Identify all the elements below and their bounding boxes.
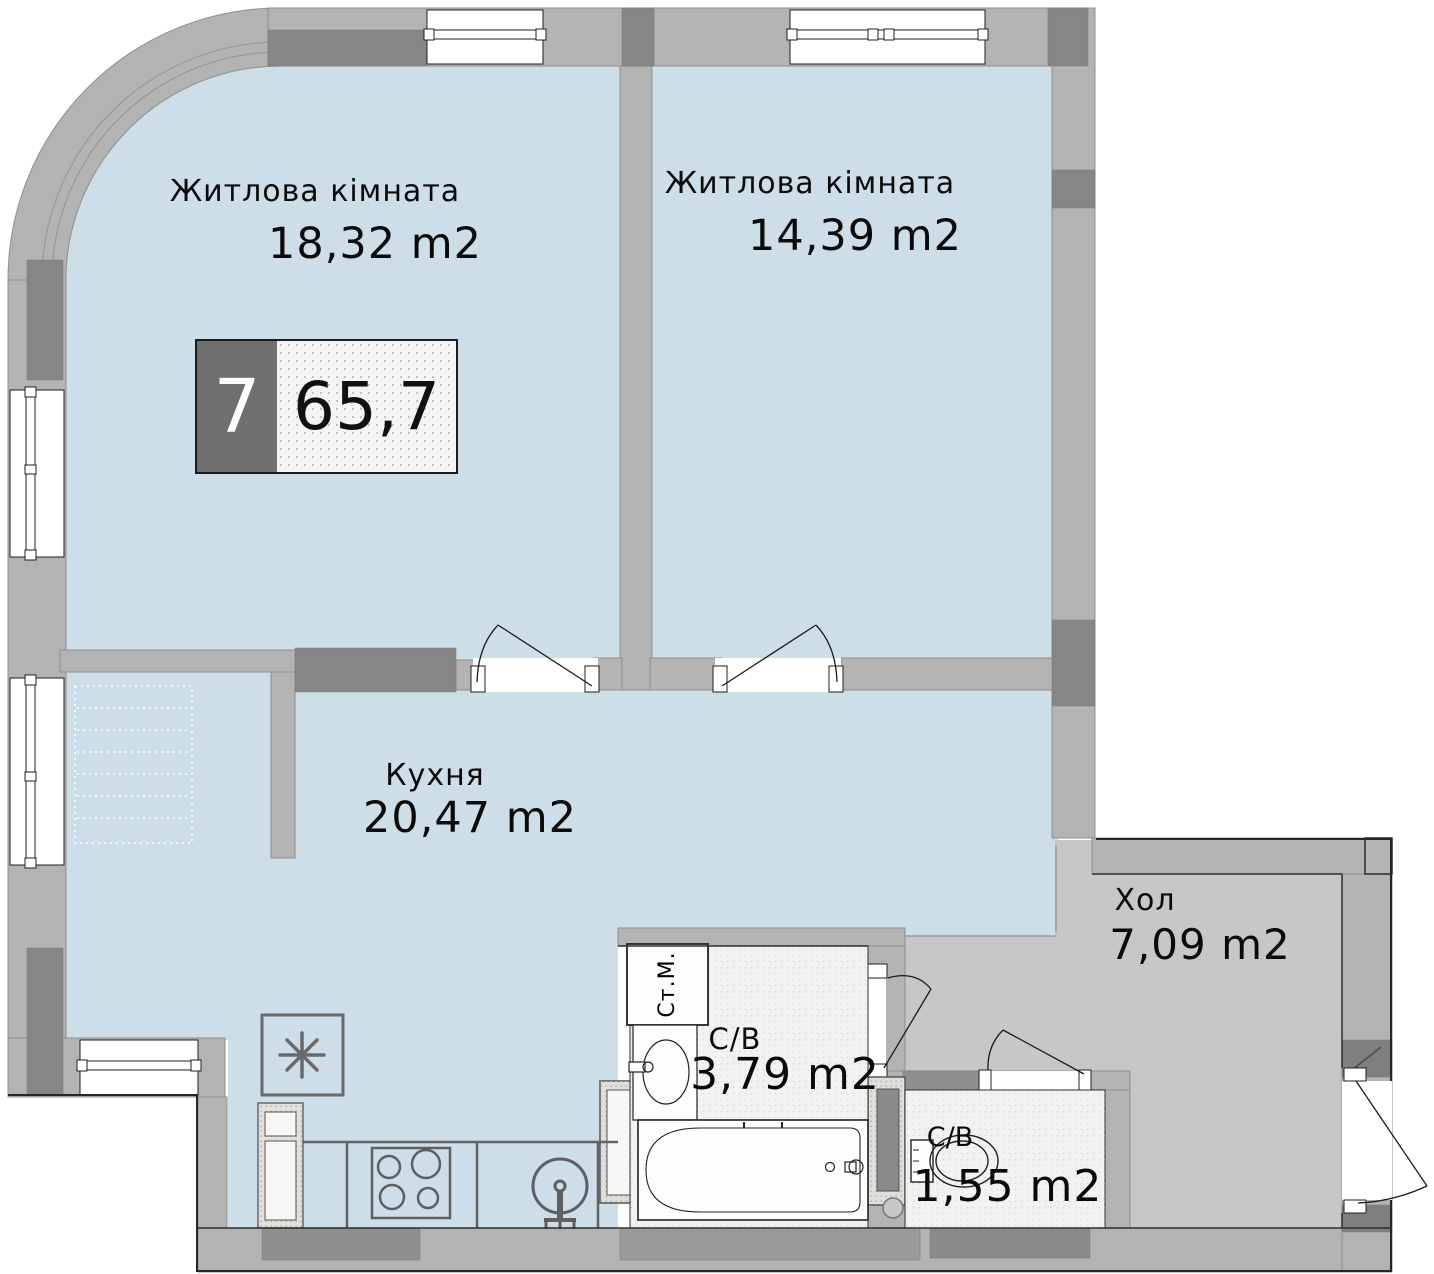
window-icon — [77, 1040, 201, 1095]
apartment-total-area: 65,7 — [277, 341, 456, 472]
window-icon — [10, 675, 64, 868]
niche-top-wall — [60, 650, 295, 672]
apartment-badge: 7 65,7 — [195, 339, 458, 474]
room-label-kitchen-area: 20,47 m2 — [330, 796, 610, 841]
fridge-icon — [258, 1103, 303, 1228]
hall-floor — [1130, 1071, 1342, 1228]
bathtub-icon — [638, 1120, 868, 1220]
floor-plan: Житлова кімната 18,32 m2 Житлова кімната… — [0, 0, 1434, 1274]
room-label-living-room-1-name: Житлова кімната — [140, 176, 490, 208]
main-right-wall — [1052, 8, 1095, 838]
room-label-hall-area: 7,09 m2 — [1085, 923, 1315, 967]
room-label-living-room-1-area: 18,32 m2 — [245, 222, 505, 267]
niche-right-wall — [271, 672, 295, 858]
washing-machine-label: Ст.М. — [627, 944, 708, 1025]
step-wall-vertical — [198, 1097, 227, 1232]
room-label-living-room-2-name: Житлова кімната — [660, 168, 960, 200]
room-label-kitchen-name: Кухня — [360, 760, 510, 792]
room-label-wc-name: С/В — [905, 1124, 995, 1152]
room-label-bathroom-area: 3,79 m2 — [670, 1052, 900, 1098]
apartment-number: 7 — [197, 341, 277, 472]
window-icon — [10, 387, 64, 560]
window-icon — [424, 10, 546, 64]
room-label-living-room-2-area: 14,39 m2 — [730, 214, 980, 259]
kitchen-floor-lower — [40, 938, 618, 1040]
room-label-wc-area: 1,55 m2 — [890, 1164, 1125, 1210]
hall-top-wall — [1092, 838, 1392, 874]
wall-segment — [650, 658, 722, 690]
window-icon — [787, 10, 988, 64]
room-label-hall-name: Хол — [1100, 885, 1190, 917]
hall-corner-block — [1365, 838, 1392, 874]
room-divider-wall — [620, 66, 652, 690]
